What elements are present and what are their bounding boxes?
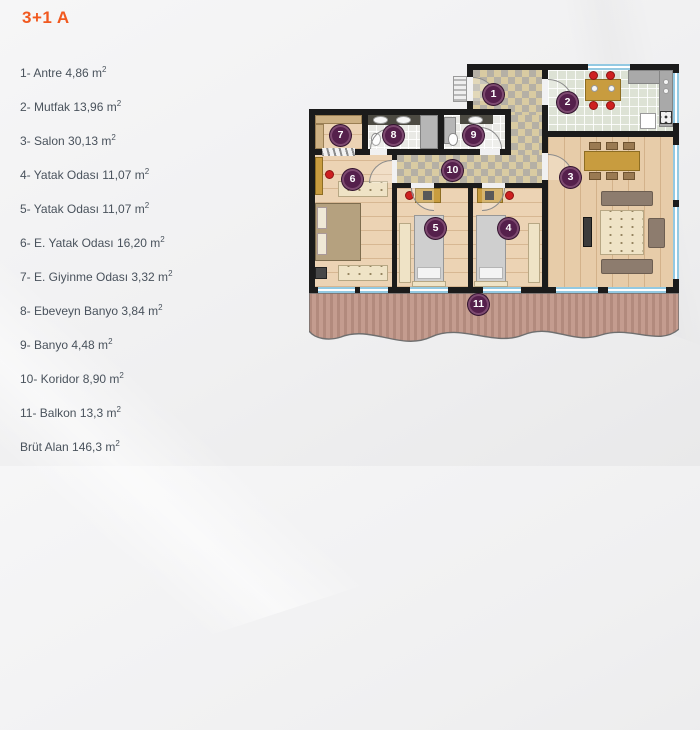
wall <box>434 183 482 188</box>
page-title: 3+1 A <box>22 8 70 28</box>
legend-item-mutfak: 2- Mutfak 13,96 m2 <box>20 98 173 110</box>
tv <box>583 217 592 247</box>
wall <box>542 105 548 153</box>
plate <box>608 85 615 92</box>
room-marker-salon: 3 <box>560 167 581 188</box>
wall <box>309 109 511 115</box>
plate <box>591 85 598 92</box>
kitchen-chair <box>606 71 615 80</box>
kitchen-sink <box>663 79 669 85</box>
bath-sink <box>373 116 388 124</box>
wall <box>548 131 679 137</box>
wall <box>309 149 322 155</box>
room-marker-yatak4: 4 <box>498 218 519 239</box>
tv-unit <box>315 267 327 279</box>
wall <box>468 188 473 287</box>
legend-item-yatak-5: 5- Yatak Odası 11,07 m2 <box>20 200 173 212</box>
dining-chair <box>606 142 618 150</box>
room-marker-e-yatak: 6 <box>342 169 363 190</box>
wall <box>309 109 315 293</box>
kitchen-chair <box>606 101 615 110</box>
page: { "title": { "text": "3+1 A" }, "legend"… <box>0 0 700 466</box>
closet-shelf <box>315 115 362 124</box>
dining-chair <box>589 172 601 180</box>
dining-chair <box>589 142 601 150</box>
wall <box>467 64 473 77</box>
window <box>673 73 679 123</box>
wall <box>500 149 511 155</box>
wall <box>387 149 480 155</box>
legend-item-balkon: 11- Balkon 13,3 m2 <box>20 404 173 416</box>
legend-item-giyinme: 7- E. Giyinme Odası 3,32 m2 <box>20 268 173 280</box>
window <box>410 287 448 293</box>
wall <box>505 183 548 188</box>
bed-pillow <box>479 267 503 279</box>
kitchen-sink <box>663 88 669 94</box>
room-koridor-floor <box>397 155 542 183</box>
room-legend: 1- Antre 4,86 m2 2- Mutfak 13,96 m2 3- S… <box>20 64 173 472</box>
dressing-room-opening <box>322 148 355 156</box>
wardrobe <box>399 223 411 283</box>
legend-item-salon: 3- Salon 30,13 m2 <box>20 132 173 144</box>
kitchen-chair <box>589 101 598 110</box>
dining-chair <box>623 172 635 180</box>
wall <box>438 115 444 149</box>
pillow <box>317 207 327 229</box>
sofa <box>601 191 653 206</box>
entry-landing <box>453 76 467 102</box>
dining-table <box>584 151 640 171</box>
armchair <box>648 218 665 248</box>
window <box>483 287 521 293</box>
vanity-stool <box>325 170 334 179</box>
room-marker-koridor: 10 <box>442 160 463 181</box>
window <box>556 287 598 293</box>
legend-item-ebeveyn-banyo: 8- Ebeveyn Banyo 3,84 m2 <box>20 302 173 314</box>
kitchen-chair <box>589 71 598 80</box>
desk-chair <box>505 191 514 200</box>
closet-shelf <box>315 124 324 149</box>
bed-pillow <box>417 267 441 279</box>
wall <box>392 155 397 160</box>
legend-item-antre: 1- Antre 4,86 m2 <box>20 64 173 76</box>
sofa <box>601 259 653 274</box>
bath-sink <box>468 116 483 124</box>
wall <box>467 64 679 70</box>
window <box>673 145 679 200</box>
wall <box>467 101 473 115</box>
balcony <box>309 293 679 345</box>
wardrobe <box>528 223 540 283</box>
wall <box>392 188 397 287</box>
window <box>608 287 666 293</box>
bath-sink <box>396 116 411 124</box>
shower <box>420 115 438 149</box>
wall <box>362 115 368 149</box>
room-marker-antre: 1 <box>483 84 504 105</box>
window <box>318 287 355 293</box>
dining-chair <box>606 172 618 180</box>
wall <box>542 64 548 79</box>
room-marker-mutfak: 2 <box>557 92 578 113</box>
room-marker-ebeveyn-banyo: 8 <box>383 125 404 146</box>
room-marker-banyo: 9 <box>463 125 484 146</box>
wall <box>355 149 370 155</box>
legend-item-banyo: 9- Banyo 4,48 m2 <box>20 336 173 348</box>
dresser <box>338 265 388 281</box>
window <box>360 287 388 293</box>
window <box>588 64 630 70</box>
dishwasher <box>640 113 656 129</box>
toilet <box>448 133 458 146</box>
wall <box>542 180 548 287</box>
coffee-table <box>600 210 644 255</box>
floor-plan: 1 2 3 4 5 6 7 8 9 10 11 <box>298 55 694 360</box>
pillow <box>317 233 327 255</box>
legend-item-yatak-4: 4- Yatak Odası 11,07 m2 <box>20 166 173 178</box>
window <box>673 207 679 279</box>
room-marker-yatak5: 5 <box>425 218 446 239</box>
stove <box>660 111 672 124</box>
vanity-desk <box>315 157 323 195</box>
room-marker-balkon: 11 <box>468 294 489 315</box>
legend-item-brut-alan: Brüt Alan 146,3 m2 <box>20 438 173 450</box>
room-marker-giyinme: 7 <box>330 125 351 146</box>
legend-item-koridor: 10- Koridor 8,90 m2 <box>20 370 173 382</box>
legend-item-e-yatak: 6- E. Yatak Odası 16,20 m2 <box>20 234 173 246</box>
dining-chair <box>623 142 635 150</box>
